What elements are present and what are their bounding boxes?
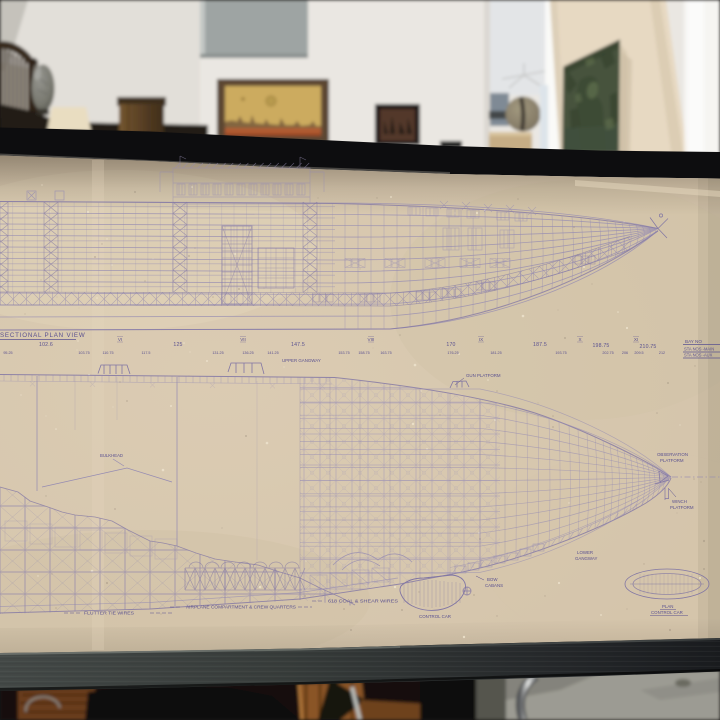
- svg-text:PLAN: PLAN: [662, 604, 673, 609]
- svg-text:141.25: 141.25: [267, 351, 278, 355]
- svg-text:163.75: 163.75: [380, 351, 391, 355]
- svg-text:XI: XI: [634, 337, 638, 342]
- svg-text:95.25: 95.25: [3, 351, 12, 355]
- svg-text:LOWER: LOWER: [577, 550, 593, 555]
- svg-text:212: 212: [659, 351, 665, 355]
- svg-text:SECTIONAL PLAN VIEW: SECTIONAL PLAN VIEW: [0, 332, 85, 339]
- svg-text:117.5: 117.5: [142, 351, 151, 355]
- svg-text:VIII: VIII: [368, 337, 375, 342]
- svg-text:193.75: 193.75: [555, 351, 566, 355]
- svg-text:PLATFORM: PLATFORM: [670, 505, 694, 510]
- svg-text:206: 206: [622, 351, 628, 355]
- svg-text:GANGWAY: GANGWAY: [575, 556, 598, 561]
- svg-text:181.25: 181.25: [490, 351, 501, 355]
- svg-text:153.75: 153.75: [338, 351, 349, 355]
- svg-text:202.75: 202.75: [602, 351, 613, 355]
- svg-text:102.6: 102.6: [39, 342, 53, 348]
- svg-text:PLATFORM: PLATFORM: [660, 458, 684, 463]
- svg-text:147.5: 147.5: [291, 342, 305, 348]
- svg-text:103.75: 103.75: [78, 351, 89, 355]
- svg-text:618 COAL & SHEAR WIRES: 618 COAL & SHEAR WIRES: [328, 599, 398, 604]
- svg-text:158.75: 158.75: [358, 351, 369, 355]
- svg-text:136.25: 136.25: [242, 351, 253, 355]
- svg-text:BOW: BOW: [487, 577, 498, 582]
- svg-text:AIRPLANE COMPARTMENT & CREW: AIRPLANE COMPARTMENT & CREW QUARTERS: [186, 605, 296, 610]
- svg-text:176.25: 176.25: [447, 351, 458, 355]
- svg-text:IX: IX: [479, 337, 483, 342]
- svg-text:187.5: 187.5: [533, 342, 547, 348]
- svg-text:GUN PLATFORM: GUN PLATFORM: [466, 373, 501, 378]
- svg-text:CABANS: CABANS: [485, 583, 503, 588]
- svg-text:VI: VI: [118, 337, 122, 342]
- svg-text:170: 170: [446, 342, 455, 348]
- svg-text:STA NOS -AUX: STA NOS -AUX: [684, 353, 713, 358]
- svg-text:125: 125: [173, 342, 182, 348]
- svg-text:131.25: 131.25: [212, 351, 223, 355]
- svg-text:BAY NO: BAY NO: [685, 339, 702, 344]
- svg-text:209.5: 209.5: [634, 351, 643, 355]
- svg-text:STA NOS -MAIN: STA NOS -MAIN: [684, 347, 714, 352]
- svg-text:BULKHEAD: BULKHEAD: [100, 453, 123, 458]
- svg-text:OBSERVATION: OBSERVATION: [657, 452, 688, 457]
- svg-text:110.75: 110.75: [102, 351, 113, 355]
- svg-text:WINCH: WINCH: [672, 499, 687, 504]
- svg-text:X: X: [578, 337, 581, 342]
- svg-text:CONTROL CAR: CONTROL CAR: [419, 614, 451, 619]
- svg-text:CONTROL CAR: CONTROL CAR: [651, 610, 683, 615]
- svg-text:UPPER GANGWAY: UPPER GANGWAY: [282, 358, 321, 363]
- svg-text:VII: VII: [240, 337, 246, 342]
- svg-text:FLUTTER TIE WIRES: FLUTTER TIE WIRES: [84, 611, 134, 616]
- svg-text:210.75: 210.75: [639, 344, 656, 350]
- svg-text:198.75: 198.75: [592, 343, 609, 349]
